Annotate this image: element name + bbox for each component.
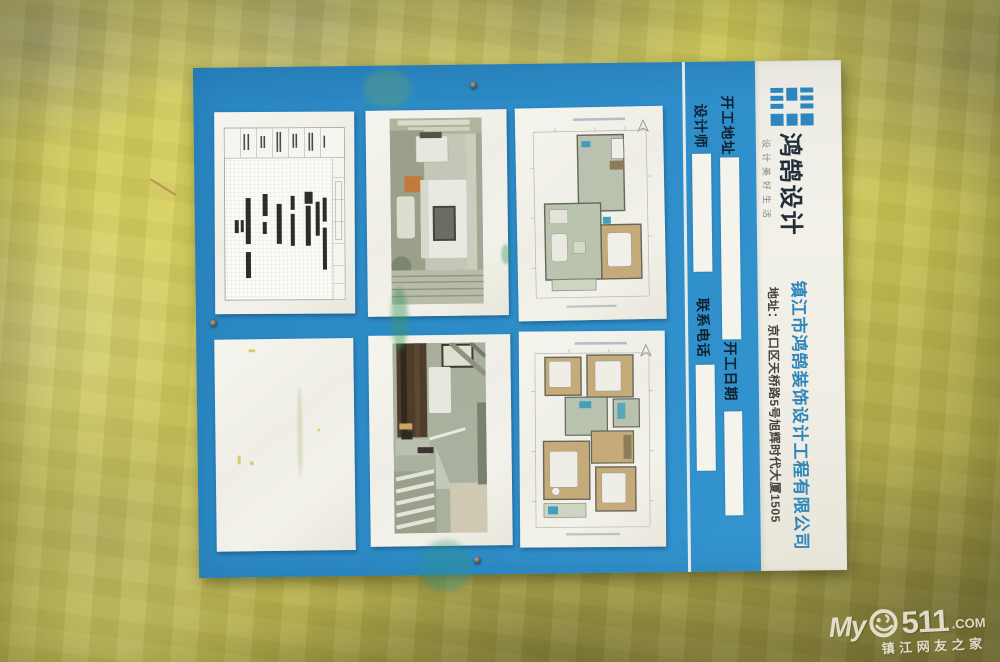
- field-line-site: [720, 157, 741, 339]
- panel-interior-rendering-1: [365, 109, 509, 317]
- paint-speck: [317, 428, 320, 431]
- floor-plan-image-2: [519, 331, 667, 548]
- divider-line: [682, 62, 691, 572]
- watermark-number: 511: [901, 608, 949, 637]
- screw-pin: [470, 82, 477, 89]
- field-label-date: 开工日期: [723, 341, 738, 401]
- paint-speck: [250, 461, 254, 465]
- screw-pin: [474, 556, 481, 563]
- field-label-site: 开工地址: [720, 95, 735, 155]
- smiley-zero-icon: [867, 606, 901, 640]
- field-label-designer: 设计师: [693, 104, 708, 149]
- floor-plan-image-1: [515, 106, 667, 322]
- paint-speck: [248, 349, 255, 352]
- photo-scene: 开工地址 开工日期 设计师 联系电话 鸿鹄设计 设计美好生活 镇江市鸿鹄装饰设计…: [0, 0, 1000, 662]
- company-name: 镇江市鸿鹄装饰设计工程有限公司: [790, 280, 810, 550]
- paint-smear: [363, 69, 411, 108]
- brand-strip: 鸿鹄设计 设计美好生活 镇江市鸿鹄装饰设计工程有限公司 地址：京口区天桥路5号旭…: [755, 60, 847, 571]
- field-line-phone: [696, 365, 716, 471]
- panel-floor-plan-1: [515, 106, 667, 322]
- panel-interior-rendering-2: [368, 334, 513, 547]
- panel-construction-schedule: [214, 112, 355, 315]
- brand-name: 鸿鹄设计: [777, 133, 802, 237]
- panel-blank-sheet: [214, 338, 356, 552]
- field-line-designer: [692, 154, 712, 272]
- screw-pin: [210, 320, 217, 327]
- honghu-logo-icon: [770, 87, 814, 128]
- company-address: 地址：京口区天桥路5号旭辉时代大厦1505: [767, 287, 782, 523]
- panel-floor-plan-2: [519, 331, 667, 548]
- paint-speck: [238, 455, 241, 464]
- brand-slogan: 设计美好生活: [761, 139, 771, 223]
- watermark-prefix: My: [828, 613, 866, 640]
- paint-smear: [420, 540, 472, 592]
- paint-smear: [501, 244, 510, 264]
- watermark-my0511: My 511 .COM 镇江网友之家: [828, 602, 987, 660]
- watermark-suffix: .COM: [951, 614, 986, 634]
- field-line-date: [724, 411, 743, 515]
- interior-rendering-image-2: [392, 342, 487, 533]
- sign-board: 开工地址 开工日期 设计师 联系电话 鸿鹄设计 设计美好生活 镇江市鸿鹄装饰设计…: [193, 60, 847, 578]
- field-label-phone: 联系电话: [696, 298, 711, 358]
- interior-rendering-image-1: [390, 117, 484, 304]
- schedule-document-image: [214, 112, 355, 315]
